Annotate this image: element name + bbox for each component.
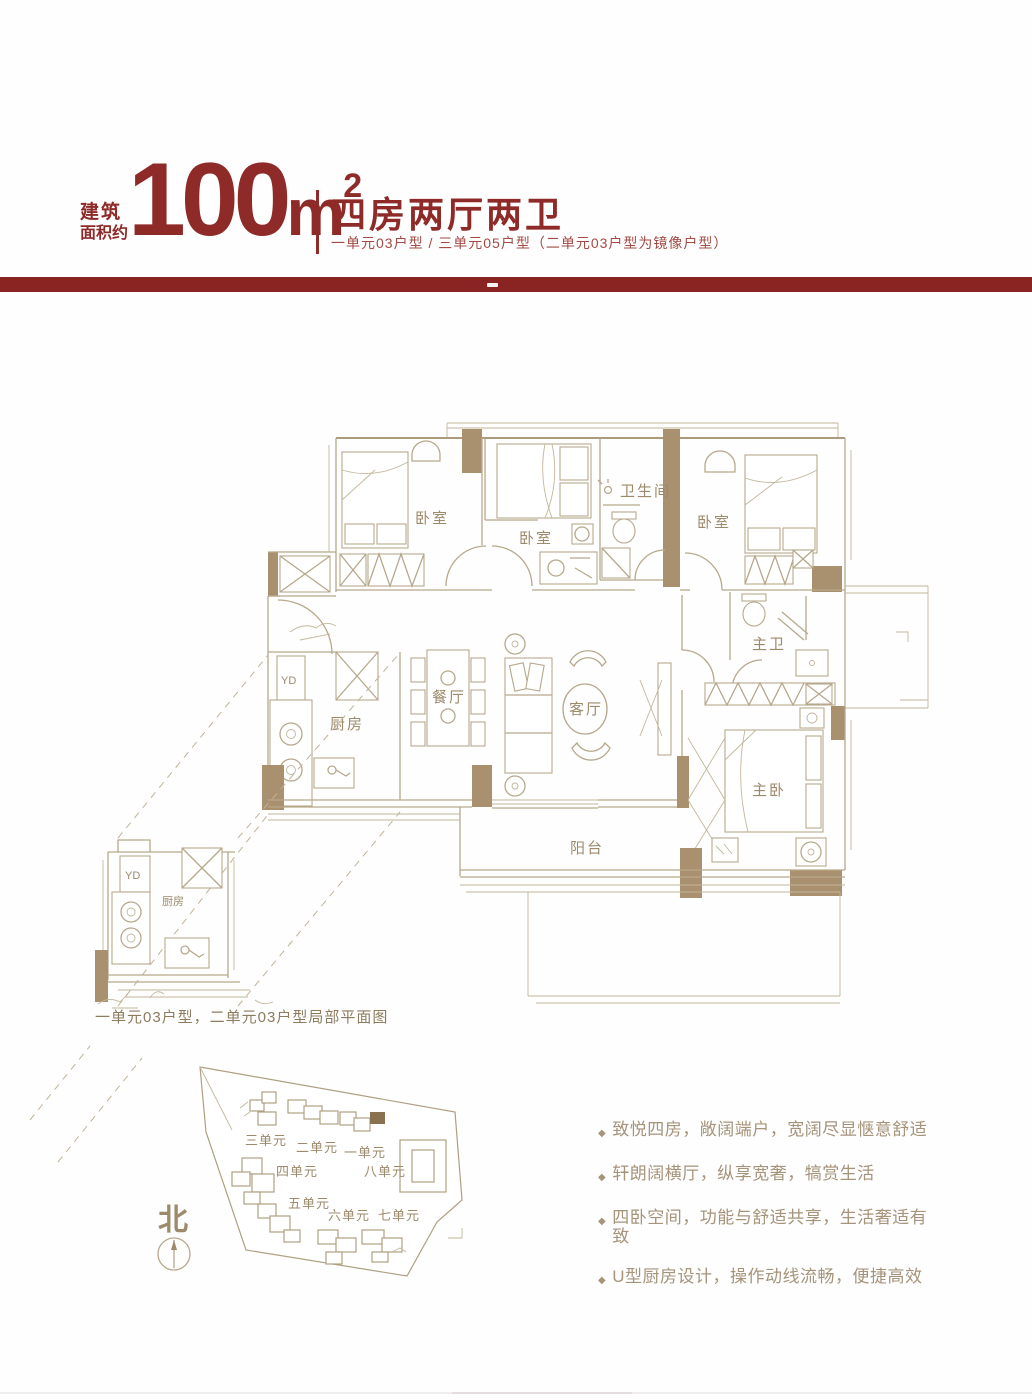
unit5-label: 五单元 — [288, 1196, 330, 1211]
label-dining: 餐厅 — [432, 689, 466, 706]
feature-item: ◆轩朗阔横厅，纵享宽奢，犒赏生活 — [598, 1164, 928, 1187]
master-closet-icon — [705, 683, 835, 705]
unit7-label: 七单元 — [378, 1208, 420, 1223]
nightstand-icon — [800, 708, 824, 728]
feature-list: ◆致悦四房，敞阔端户，宽阔尽显惬意舒适 ◆轩朗阔横厅，纵享宽奢，犒赏生活 ◆四卧… — [598, 1120, 928, 1311]
tv-wall-icon — [658, 663, 671, 755]
toilet-icon — [612, 512, 636, 543]
washing-machine-icon — [796, 838, 826, 866]
diamond-bullet-icon: ◆ — [598, 1124, 606, 1143]
footer-divider — [0, 1392, 1032, 1394]
ac-arc-bed3 — [705, 451, 735, 472]
unit8-label: 八单元 — [364, 1164, 406, 1179]
site-corner-mark — [448, 1228, 462, 1238]
feature-text: 四卧空间，功能与舒适共享，生活奢适有致 — [612, 1208, 928, 1246]
diamond-bullet-icon: ◆ — [598, 1271, 606, 1290]
bed3-icon — [745, 455, 817, 553]
unit6-label: 六单元 — [328, 1208, 370, 1223]
highlighted-building — [370, 1112, 385, 1124]
balcony-fixture-icon — [712, 838, 738, 862]
partial-counter — [112, 892, 209, 968]
wardrobe1-icon — [340, 554, 424, 586]
feature-text: 致悦四房，敞阔端户，宽阔尽显惬意舒适 — [612, 1120, 927, 1139]
unit3-label: 三单元 — [245, 1133, 287, 1148]
feature-item: ◆U型厨房设计，操作动线流畅，便捷高效 — [598, 1267, 928, 1290]
label-kitchen: 厨房 — [330, 716, 364, 733]
master-sink-icon — [796, 650, 828, 676]
master-toilet-icon — [742, 594, 766, 626]
brochure-page: 建筑 面积约 100m2 四房两厅两卫 一单元03户型 / 三单元05户型（二单… — [0, 0, 1032, 1400]
partial-top-notch — [118, 840, 150, 852]
bed1-icon — [342, 452, 408, 548]
bed2-icon — [497, 444, 591, 518]
north-indicator: 北 — [158, 1204, 190, 1270]
label-living: 客厅 — [569, 701, 603, 718]
diamond-bullet-icon: ◆ — [598, 1168, 606, 1187]
unit1-label: 一单元 — [344, 1145, 386, 1160]
north-label: 北 — [158, 1204, 188, 1237]
partial-yd-label: YD — [125, 870, 140, 882]
label-bedroom2: 卧室 — [519, 530, 553, 547]
unit4-label: 四单元 — [276, 1164, 318, 1179]
door-arc-bed3 — [685, 553, 722, 590]
door-arc-entry — [278, 600, 332, 654]
armchair-top-icon — [570, 651, 606, 666]
sofa-icon — [505, 634, 552, 796]
partial-kitchen-label: 厨房 — [162, 895, 184, 908]
label-bedroom3: 卧室 — [697, 514, 731, 531]
shaft-icon — [280, 556, 330, 592]
master-bed-icon — [725, 730, 823, 832]
partial-plan: YD 厨房 一单元03户型，二单元03户型局部平面图 — [95, 840, 388, 1026]
label-master-bath: 主卫 — [752, 636, 786, 653]
door-arc-corridor — [682, 650, 714, 682]
partial-flue-box — [182, 848, 222, 888]
yd-label-main: YD — [281, 675, 296, 687]
caption-sketch-squiggle — [98, 992, 273, 1008]
wing-mark — [896, 632, 908, 642]
flue-box-icon — [336, 652, 378, 700]
partial-plan-caption: 一单元03户型，二单元03户型局部平面图 — [95, 1009, 388, 1026]
shower-stall-icon — [602, 548, 630, 578]
label-bath: 卫生间 — [620, 483, 671, 500]
label-balcony: 阳台 — [570, 840, 604, 857]
feature-text: 轩朗阔横厅，纵享宽奢，犒赏生活 — [612, 1164, 875, 1183]
site-map: 三单元 二单元 一单元 四单元 八单元 五单元 六单元 七单元 北 — [158, 1067, 462, 1276]
label-master: 主卧 — [752, 782, 786, 799]
ac-arc-bed1 — [412, 441, 440, 461]
armchair-bottom-icon — [572, 743, 610, 760]
feature-item: ◆致悦四房，敞阔端户，宽阔尽显惬意舒适 — [598, 1120, 928, 1143]
diamond-bullet-icon: ◆ — [598, 1212, 606, 1231]
unit2-label: 二单元 — [296, 1140, 338, 1155]
door-arc-bath — [635, 550, 665, 580]
door-arc-bed1 — [446, 546, 486, 586]
building-unit8 — [400, 1140, 446, 1192]
label-bedroom1: 卧室 — [415, 510, 449, 527]
master-shower-icon — [778, 596, 808, 640]
feature-item: ◆四卧空间，功能与舒适共享，生活奢适有致 — [598, 1208, 928, 1246]
wardrobe3-icon — [745, 550, 813, 584]
footer-divider-segment — [452, 1392, 632, 1394]
door-arc-bed2 — [492, 546, 532, 586]
feature-text: U型厨房设计，操作动线流畅，便捷高效 — [612, 1267, 922, 1286]
